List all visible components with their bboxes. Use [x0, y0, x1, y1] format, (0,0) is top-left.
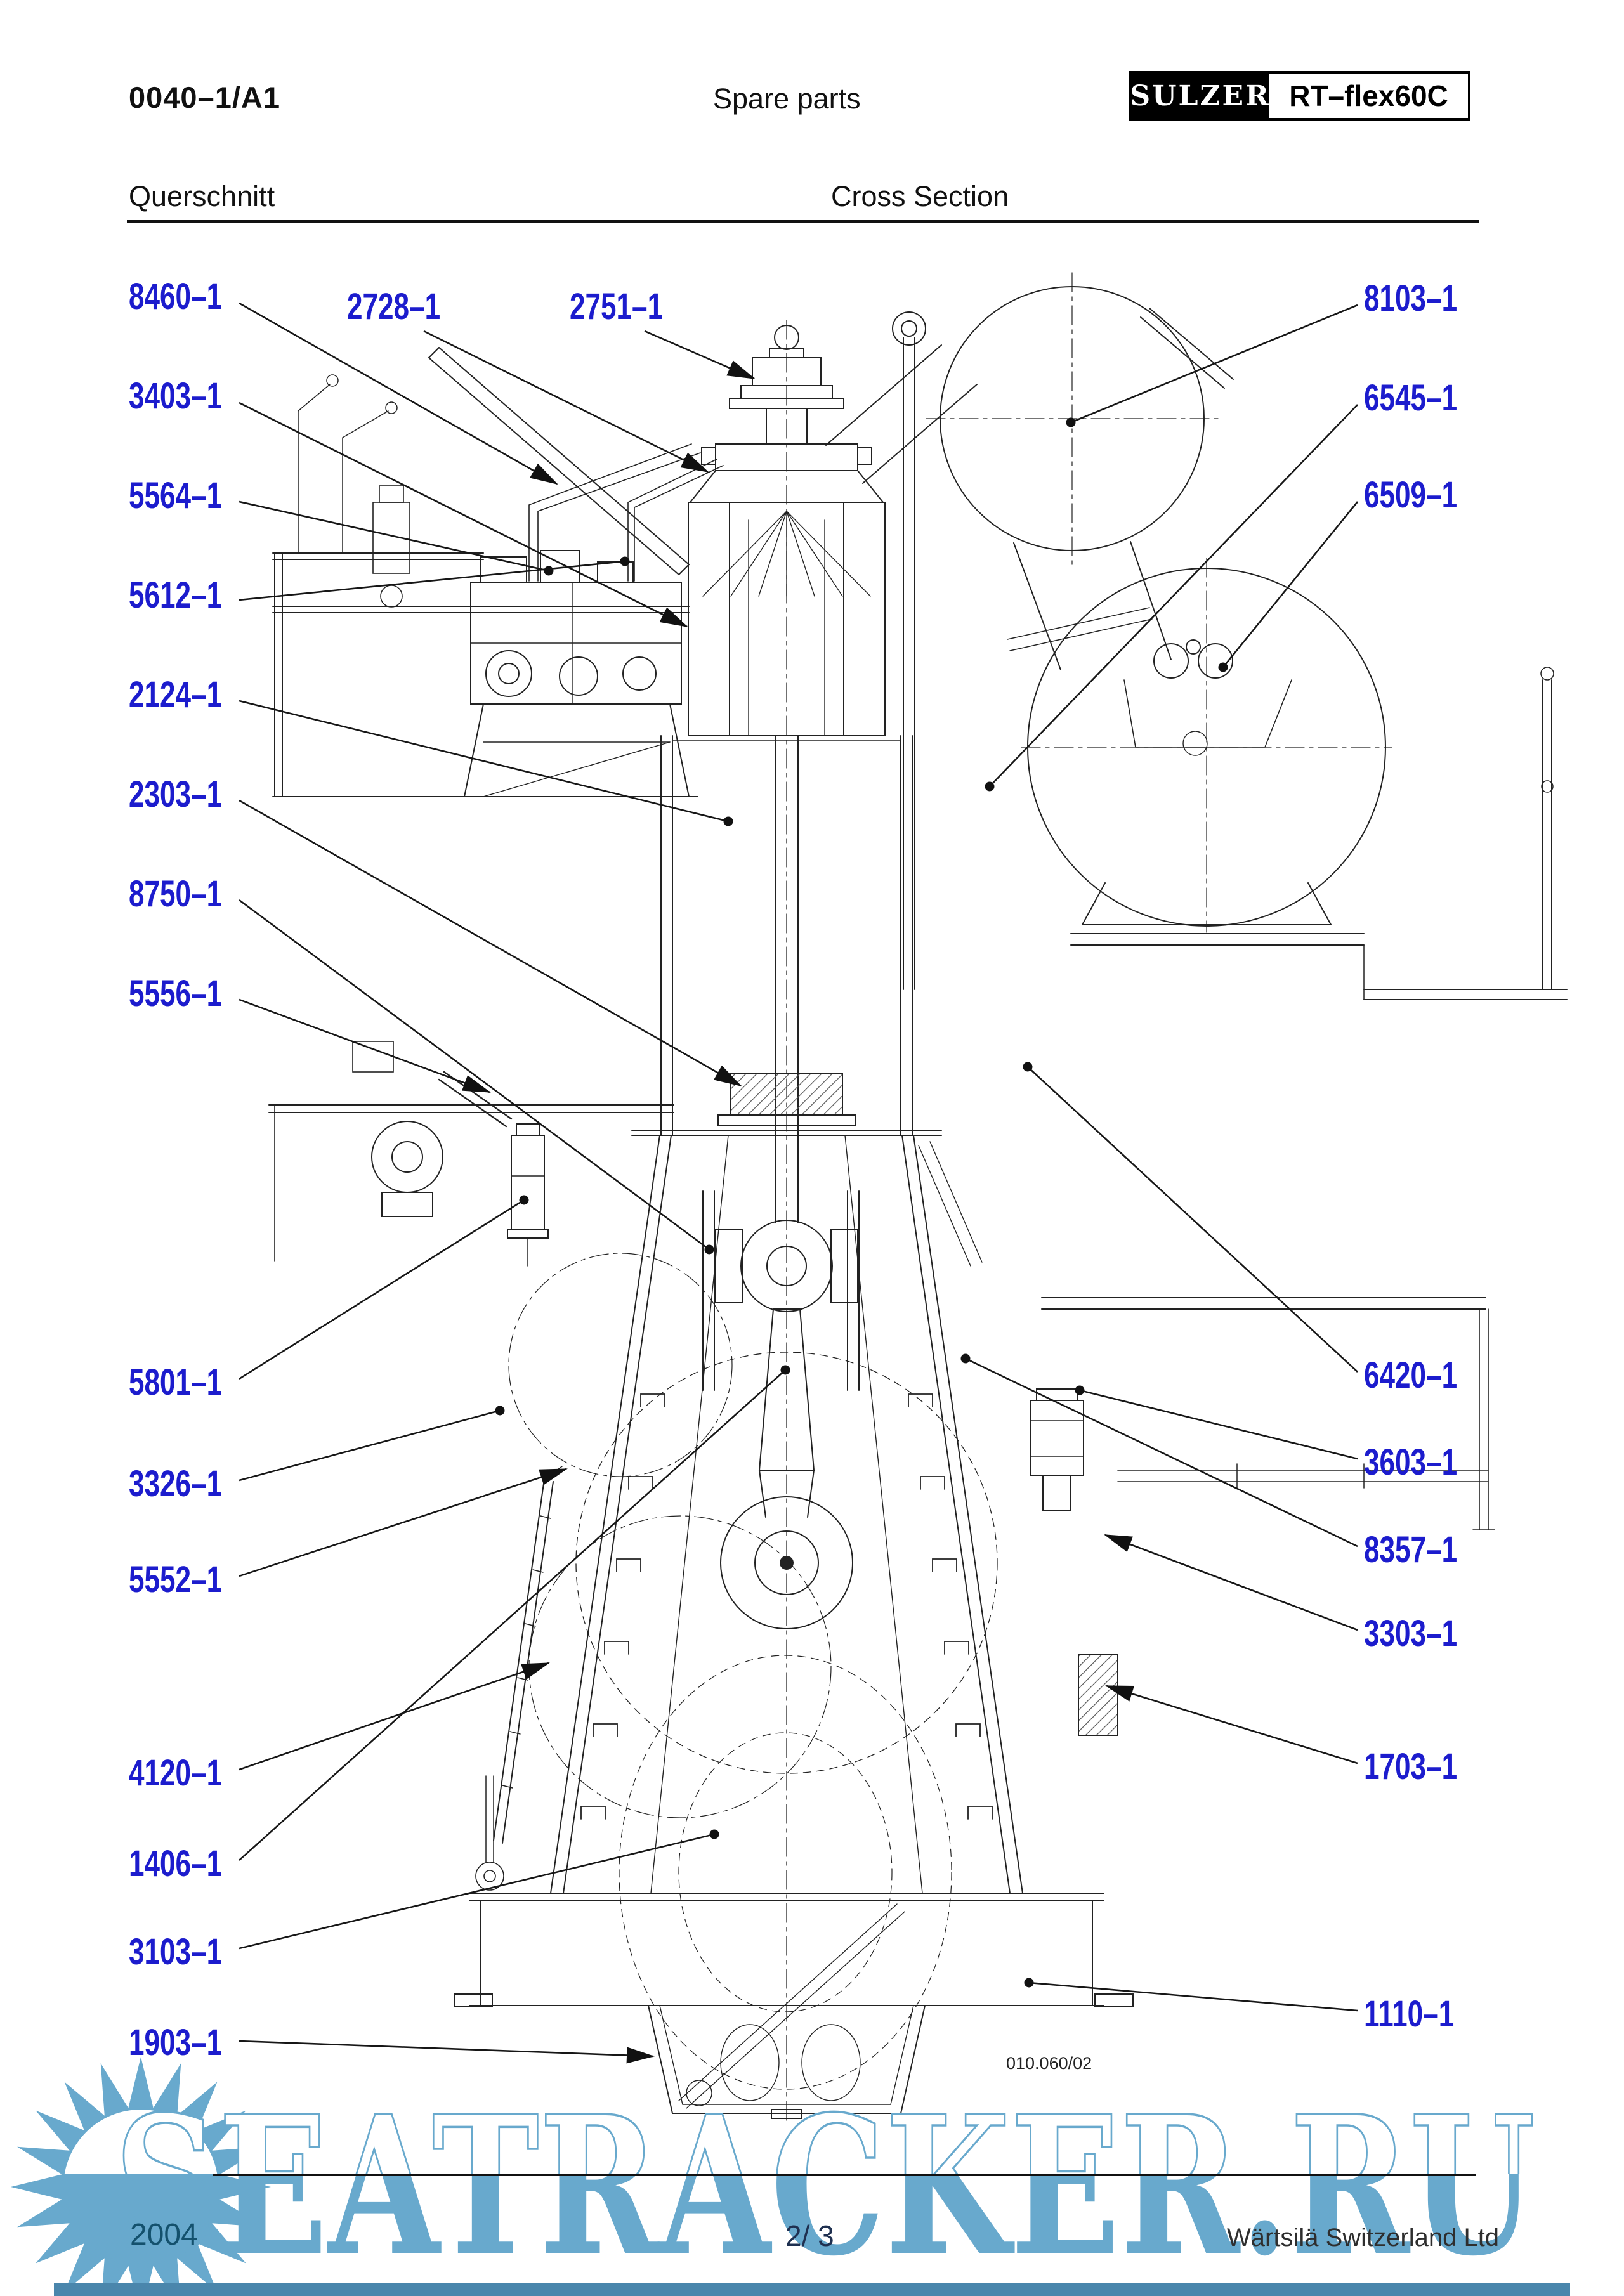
- leader-line-4120–1: [239, 1663, 549, 1770]
- leader-line-8750–1: [239, 900, 709, 1249]
- leader-line-3326–1: [239, 1411, 500, 1480]
- leader-line-3303–1: [1105, 1535, 1358, 1630]
- leader-line-1903–1: [239, 2041, 653, 2056]
- leader-line-1110–1: [1029, 1983, 1358, 2011]
- leader-line-5564–1: [239, 502, 549, 571]
- leader-line-5552–1: [239, 1469, 566, 1576]
- leader-line-5801–1: [239, 1200, 524, 1379]
- leader-line-8357–1: [966, 1359, 1358, 1546]
- leader-line-6509–1: [1223, 502, 1358, 667]
- leader-line-8103–1: [1071, 305, 1358, 422]
- leader-line-6545–1: [990, 405, 1358, 786]
- leader-line-2751–1: [645, 331, 754, 379]
- leader-lines-group: [239, 303, 1358, 2056]
- leader-line-6420–1: [1028, 1067, 1358, 1372]
- leader-line-5556–1: [239, 1000, 490, 1092]
- leader-line-1406–1: [239, 1370, 785, 1860]
- leader-line-1703–1: [1106, 1686, 1358, 1763]
- leader-line-3103–1: [239, 1834, 714, 1948]
- leader-line-2728–1: [424, 331, 708, 472]
- manual-page: { "header": { "doc_code": "0040–1/A1", "…: [0, 0, 1624, 2296]
- leader-line-3603–1: [1080, 1390, 1358, 1459]
- leader-line-5612–1: [239, 561, 625, 600]
- callout-leader-layer: [0, 0, 1624, 2296]
- leader-line-8460–1: [239, 303, 557, 484]
- leader-line-2124–1: [239, 701, 728, 821]
- leader-line-2303–1: [239, 800, 741, 1086]
